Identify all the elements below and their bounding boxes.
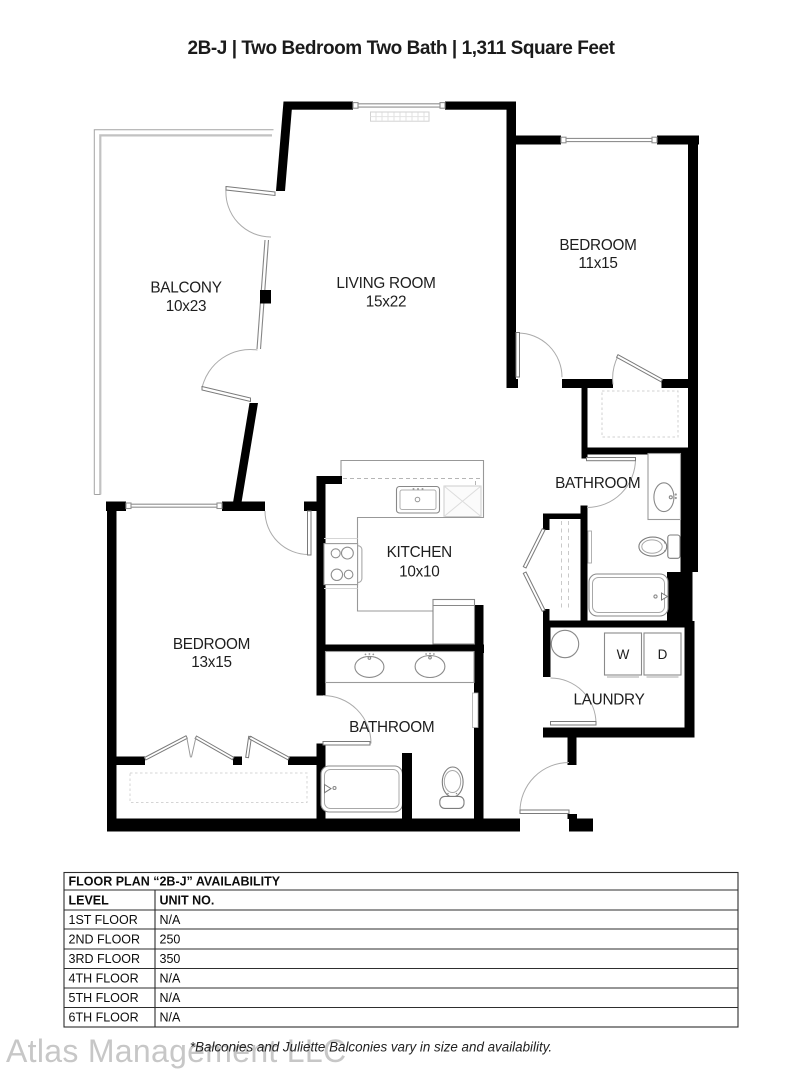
- svg-text:4TH FLOOR: 4TH FLOOR: [69, 972, 139, 986]
- svg-text:N/A: N/A: [160, 991, 182, 1005]
- svg-text:N/A: N/A: [160, 972, 182, 986]
- svg-text:BEDROOM: BEDROOM: [559, 237, 636, 254]
- svg-text:*Balconies and Juliette Balcon: *Balconies and Juliette Balconies vary i…: [190, 1040, 552, 1055]
- svg-text:6TH FLOOR: 6TH FLOOR: [69, 1011, 139, 1025]
- svg-text:250: 250: [160, 932, 181, 946]
- svg-text:LEVEL: LEVEL: [69, 894, 110, 908]
- svg-text:1ST FLOOR: 1ST FLOOR: [69, 913, 138, 927]
- svg-text:KITCHEN: KITCHEN: [387, 544, 452, 561]
- svg-text:N/A: N/A: [160, 1011, 182, 1025]
- svg-text:3RD FLOOR: 3RD FLOOR: [69, 952, 141, 966]
- svg-text:13x15: 13x15: [191, 654, 231, 671]
- svg-text:10x10: 10x10: [399, 563, 439, 580]
- svg-text:2ND FLOOR: 2ND FLOOR: [69, 932, 141, 946]
- svg-text:10x23: 10x23: [166, 298, 206, 315]
- svg-text:LIVING ROOM: LIVING ROOM: [336, 275, 435, 292]
- svg-text:W: W: [617, 647, 630, 662]
- svg-text:BALCONY: BALCONY: [150, 279, 221, 296]
- svg-text:350: 350: [160, 952, 181, 966]
- svg-text:BEDROOM: BEDROOM: [173, 636, 250, 653]
- svg-text:FLOOR PLAN “2B-J” AVAILABILITY: FLOOR PLAN “2B-J” AVAILABILITY: [69, 875, 281, 889]
- svg-text:UNIT NO.: UNIT NO.: [160, 894, 215, 908]
- svg-text:N/A: N/A: [160, 913, 182, 927]
- svg-text:D: D: [658, 647, 668, 662]
- svg-text:LAUNDRY: LAUNDRY: [573, 691, 644, 708]
- svg-text:BATHROOM: BATHROOM: [349, 719, 434, 736]
- svg-text:BATHROOM: BATHROOM: [555, 475, 640, 492]
- svg-text:5TH FLOOR: 5TH FLOOR: [69, 991, 139, 1005]
- svg-text:11x15: 11x15: [578, 255, 617, 272]
- svg-text:2B-J | Two Bedroom Two Bath |: 2B-J | Two Bedroom Two Bath | 1,311 Squa…: [188, 38, 616, 59]
- svg-text:15x22: 15x22: [366, 294, 406, 311]
